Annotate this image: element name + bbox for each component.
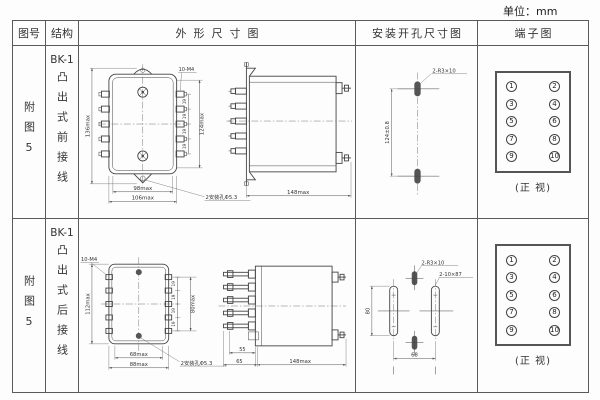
- unit-label: 单位：mm: [503, 3, 557, 19]
- page: 单位：mm 图号 结构 外形尺寸图 安装开孔尺寸图 端子图 附图5 BK-1 凸…: [0, 0, 600, 400]
- install-cell-row1: 124±0.8 2-R3×10: [356, 46, 478, 219]
- terminal-pin: 1: [506, 255, 517, 266]
- terminal-pin: 1: [506, 81, 517, 92]
- terminal-pin: 10: [549, 151, 560, 162]
- dim-width-inner-row2: 68max: [130, 351, 148, 357]
- dim-depth-row2: 148max: [289, 358, 311, 364]
- terminal-box-row1: 12 34 56 78 910: [495, 71, 571, 173]
- dim-depth: 148max: [287, 189, 310, 195]
- rear-side-terminals: [223, 270, 255, 330]
- dim-height-overall: 136max: [85, 114, 91, 137]
- structure-cell-row2: BK-1 凸出式后接线: [46, 219, 79, 393]
- structure-row2: 凸出式后接线: [57, 244, 68, 364]
- terminal-pin: 4: [549, 272, 560, 283]
- terminal-pin: 2: [549, 255, 560, 266]
- dim-pitch-r2-3: 19: [171, 307, 176, 313]
- figure-no-row2: 附图5: [24, 275, 35, 337]
- terminal-pin: 9: [506, 151, 517, 162]
- dim-width-inner: 98max: [133, 185, 153, 191]
- dim-pitch-3: 19: [182, 128, 187, 134]
- structure-cell-row1: BK-1 凸出式前接线: [46, 46, 79, 219]
- dim-pitch-4: 19: [182, 143, 187, 149]
- outline-drawing-rear-wiring: 10-M4 112max 19 19 19 19 80max 68max: [79, 219, 355, 393]
- dim-width-overall: 106max: [132, 195, 155, 201]
- dim-height-overall-row2: 112max: [85, 293, 91, 315]
- terminal-pin: 9: [506, 325, 517, 336]
- dim-stud-inner: 55: [239, 346, 245, 352]
- dim-width-overall-row2: 88max: [130, 361, 148, 367]
- terminal-pin: 3: [506, 99, 517, 110]
- dim-pitch-r2-1: 19: [171, 280, 176, 286]
- terminal-pin: 7: [506, 307, 517, 318]
- dim-stud-outer: 65: [236, 358, 242, 364]
- header-terminal: 端子图: [478, 21, 589, 46]
- terminal-pin: 2: [549, 81, 560, 92]
- header-figure-no: 图号: [13, 21, 46, 46]
- header-structure: 结构: [46, 21, 79, 46]
- terminal-pin: 4: [549, 99, 560, 110]
- outline-drawing-front-wiring: 136max 19 19 19 19 124max 10-M4 98max 10…: [79, 46, 355, 219]
- terminal-caption-row2: (正 视): [515, 352, 551, 367]
- terminal-cell-row2: 12 34 56 78 910 (正 视): [478, 219, 589, 393]
- dim-pitch-2: 19: [182, 113, 187, 119]
- dim-pitch-r2-2: 19: [171, 294, 176, 300]
- figure-no-row1: 附图5: [24, 101, 35, 163]
- terminal-caption-row1: (正 视): [515, 179, 551, 194]
- terminal-cell-row1: 12 34 56 78 910 (正 视): [478, 46, 589, 219]
- side-mount-studs: [336, 82, 351, 163]
- terminal-pin: 5: [506, 290, 517, 301]
- dim-install-pitch-v: 124±0.8: [385, 121, 391, 144]
- dim-install-pitch-v-row2: 80: [365, 307, 371, 314]
- dim-install-pitch-h-row2: 68: [411, 352, 418, 358]
- dim-pitch-r2-4: 19: [171, 321, 176, 327]
- terminal-pin: 8: [549, 307, 560, 318]
- terminal-pin: 7: [506, 134, 517, 145]
- terminal-pin: 3: [506, 272, 517, 283]
- outline-cell-row1: 136max 19 19 19 19 124max 10-M4 98max 10…: [79, 46, 356, 219]
- terminal-pin: 8: [549, 134, 560, 145]
- figure-no-cell-row1: 附图5: [13, 46, 46, 219]
- install-drawing-front-wiring: 124±0.8 2-R3×10: [356, 46, 477, 219]
- structure-row1: 凸出式前接线: [57, 71, 68, 191]
- mount-hole-label-row2: 2安装孔Φ5.3: [181, 358, 213, 366]
- header-outline: 外形尺寸图: [79, 21, 356, 46]
- outline-cell-row2: 10-M4 112max 19 19 19 19 80max 68max: [79, 219, 356, 393]
- terminal-pin: 6: [549, 116, 560, 127]
- figure-no-cell-row2: 附图5: [13, 219, 46, 393]
- dim-terminal-span: 124max: [200, 112, 206, 135]
- install-cell-row2: 2-R3×10 2-10×87 80 68: [356, 219, 478, 393]
- header-install: 安装开孔尺寸图: [356, 21, 478, 46]
- dimension-table: 图号 结构 外形尺寸图 安装开孔尺寸图 端子图 附图5 BK-1 凸出式前接线: [12, 20, 589, 393]
- terminal-pin: 5: [506, 116, 517, 127]
- mount-hole-label: 2安装孔Φ5.3: [206, 193, 238, 201]
- dim-terminal-span-row2: 80max: [191, 294, 197, 312]
- install-drawing-rear-wiring: 2-R3×10 2-10×87 80 68: [356, 219, 477, 393]
- model-row1: BK-1: [50, 54, 73, 66]
- terminal-box-row2: 12 34 56 78 910: [495, 244, 571, 346]
- model-row2: BK-1: [50, 227, 73, 239]
- terminal-pin: 6: [549, 290, 560, 301]
- dim-pitch-1: 19: [182, 98, 187, 104]
- terminal-pin: 10: [549, 325, 560, 336]
